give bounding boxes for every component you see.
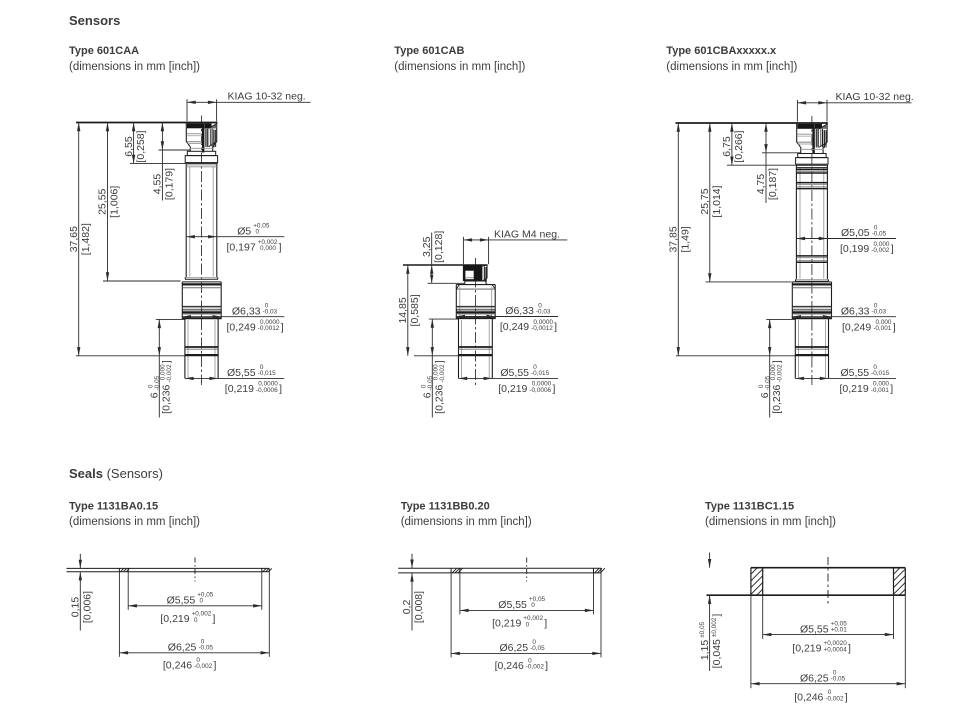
svg-text:[0,128]: [0,128] xyxy=(433,231,445,263)
svg-text:-0,03: -0,03 xyxy=(536,308,551,315)
svg-text:[0,219: [0,219 xyxy=(225,383,254,395)
svg-text:Ø5,55: Ø5,55 xyxy=(800,623,829,635)
svg-text:[1,482]: [1,482] xyxy=(80,223,92,255)
svg-text:]: ] xyxy=(848,643,851,655)
svg-text:37,85: 37,85 xyxy=(668,226,680,252)
svg-text:Ø5,05: Ø5,05 xyxy=(841,227,870,239)
svg-text:[0,008]: [0,008] xyxy=(413,591,425,623)
svg-text:]: ] xyxy=(552,383,555,395)
svg-text:[0,249: [0,249 xyxy=(227,321,256,333)
svg-text:Type 1131BA0.15: Type 1131BA0.15 xyxy=(69,500,158,512)
svg-text:(dimensions in mm [inch]): (dimensions in mm [inch]) xyxy=(69,516,200,528)
svg-text:-0,001: -0,001 xyxy=(871,387,890,394)
svg-text:Ø6,33: Ø6,33 xyxy=(232,305,261,317)
svg-text:-0,002: -0,002 xyxy=(871,247,890,254)
svg-text:[0,219: [0,219 xyxy=(792,643,821,655)
svg-text:4,55: 4,55 xyxy=(152,174,164,195)
svg-text:Ø6,25: Ø6,25 xyxy=(500,642,529,654)
svg-text:-0,03: -0,03 xyxy=(263,309,278,316)
svg-text:0: 0 xyxy=(200,598,204,605)
svg-text:[0,2360,000-0,002]: [0,2360,000-0,002] xyxy=(432,360,446,414)
svg-text:25,55: 25,55 xyxy=(97,188,109,214)
svg-text:[0,266]: [0,266] xyxy=(733,130,745,162)
svg-text:]: ] xyxy=(890,383,893,395)
svg-text:Ø6,25: Ø6,25 xyxy=(800,672,829,684)
svg-text:[0,219: [0,219 xyxy=(492,618,521,630)
svg-text:-0,0006: -0,0006 xyxy=(529,387,551,394)
svg-text:KIAG M4 neg.: KIAG M4 neg. xyxy=(494,228,560,240)
svg-text:-0,015: -0,015 xyxy=(871,370,890,377)
svg-text:-0,002: -0,002 xyxy=(194,663,213,670)
svg-text:Type 1131BC1.15: Type 1131BC1.15 xyxy=(705,500,794,512)
svg-text:]: ] xyxy=(545,660,548,672)
svg-text:Ø6,25: Ø6,25 xyxy=(168,642,197,654)
svg-text:]: ] xyxy=(893,321,896,333)
svg-text:-0,0012: -0,0012 xyxy=(531,325,553,332)
svg-text:3,25: 3,25 xyxy=(421,236,433,257)
svg-text:[0,246: [0,246 xyxy=(794,692,823,704)
svg-text:[0,199: [0,199 xyxy=(840,243,869,255)
svg-text:KIAG 10-32 neg.: KIAG 10-32 neg. xyxy=(836,91,914,103)
svg-text:]: ] xyxy=(281,321,284,333)
svg-text:-0,0006: -0,0006 xyxy=(256,387,278,394)
svg-text:25,75: 25,75 xyxy=(699,188,711,214)
svg-text:Ø5,55: Ø5,55 xyxy=(227,367,256,379)
svg-text:-0,015: -0,015 xyxy=(258,370,277,377)
svg-text:Seals (Sensors): Seals (Sensors) xyxy=(69,466,163,481)
svg-text:[0,246: [0,246 xyxy=(163,659,192,671)
svg-text:]: ] xyxy=(554,321,557,333)
svg-text:Type 1131BB0.20: Type 1131BB0.20 xyxy=(401,500,490,512)
svg-text:(dimensions in mm [inch]): (dimensions in mm [inch]) xyxy=(394,61,525,73)
svg-text:]: ] xyxy=(213,659,216,671)
svg-text:]: ] xyxy=(891,243,894,255)
svg-text:[0,219: [0,219 xyxy=(840,383,869,395)
svg-text:Ø6,33: Ø6,33 xyxy=(841,305,870,317)
svg-text:-0,001: -0,001 xyxy=(873,325,892,332)
svg-text:Type 601CAA: Type 601CAA xyxy=(69,45,139,57)
svg-text:0,15: 0,15 xyxy=(70,597,82,618)
svg-text:+0,0004: +0,0004 xyxy=(823,646,847,653)
svg-text:-0,015: -0,015 xyxy=(531,370,550,377)
svg-text:[1,014]: [1,014] xyxy=(711,185,723,217)
svg-text:Ø5,55: Ø5,55 xyxy=(167,595,196,607)
svg-text:]: ] xyxy=(279,241,282,253)
svg-text:[0,219: [0,219 xyxy=(160,613,189,625)
svg-text:Type 601CAB: Type 601CAB xyxy=(394,45,464,57)
svg-text:[0,249: [0,249 xyxy=(500,321,529,333)
svg-text:Sensors: Sensors xyxy=(69,13,120,28)
svg-text:[0,197: [0,197 xyxy=(227,241,256,253)
svg-text:[0,2360,000-0,002]: [0,2360,000-0,002] xyxy=(770,360,784,414)
svg-text:(dimensions in mm [inch]): (dimensions in mm [inch]) xyxy=(666,61,797,73)
svg-text:[0,219: [0,219 xyxy=(498,383,527,395)
svg-text:6,55: 6,55 xyxy=(123,136,135,157)
svg-text:14,85: 14,85 xyxy=(397,297,409,323)
svg-text:Ø5: Ø5 xyxy=(237,225,251,237)
svg-text:6,75: 6,75 xyxy=(721,136,733,157)
svg-text:Type 601CBAxxxxx.x: Type 601CBAxxxxx.x xyxy=(666,45,777,57)
svg-text:-0,0012: -0,0012 xyxy=(258,325,280,332)
svg-text:Ø6,33: Ø6,33 xyxy=(505,305,534,317)
svg-text:Ø5,55: Ø5,55 xyxy=(498,599,527,611)
svg-text:0: 0 xyxy=(256,229,260,236)
svg-text:0: 0 xyxy=(531,602,535,609)
svg-text:(dimensions in mm [inch]): (dimensions in mm [inch]) xyxy=(705,516,836,528)
svg-text:]: ] xyxy=(845,692,848,704)
svg-text:]: ] xyxy=(213,613,216,625)
svg-text:[0,2360,000-0,002]: [0,2360,000-0,002] xyxy=(159,360,173,414)
svg-text:+0,01: +0,01 xyxy=(831,626,848,633)
svg-text:]: ] xyxy=(279,383,282,395)
svg-text:[0,006]: [0,006] xyxy=(82,591,94,623)
svg-text:-0,05: -0,05 xyxy=(198,645,213,652)
svg-text:4,75: 4,75 xyxy=(755,174,767,195)
svg-text:-0,002: -0,002 xyxy=(526,664,545,671)
svg-text:0: 0 xyxy=(194,617,198,624)
svg-text:[0,258]: [0,258] xyxy=(135,130,147,162)
svg-text:[0,585]: [0,585] xyxy=(409,294,421,326)
svg-text:Ø5,55: Ø5,55 xyxy=(841,367,870,379)
svg-text:0,2: 0,2 xyxy=(401,600,413,615)
svg-text:Ø5,55: Ø5,55 xyxy=(500,367,529,379)
svg-text:KIAG 10-32 neg.: KIAG 10-32 neg. xyxy=(228,91,306,103)
svg-text:-0,05: -0,05 xyxy=(831,676,846,683)
svg-text:[1,006]: [1,006] xyxy=(109,186,121,218)
svg-text:[0,187]: [0,187] xyxy=(767,168,779,200)
svg-text:-0,03: -0,03 xyxy=(872,309,887,316)
svg-text:[0,246: [0,246 xyxy=(495,660,524,672)
svg-text:]: ] xyxy=(544,618,547,630)
svg-text:[1,49]: [1,49] xyxy=(680,226,692,252)
svg-text:(dimensions in mm [inch]): (dimensions in mm [inch]) xyxy=(401,516,532,528)
svg-text:(dimensions in mm [inch]): (dimensions in mm [inch]) xyxy=(69,61,200,73)
svg-text:[0,249: [0,249 xyxy=(842,321,871,333)
svg-text:-0,05: -0,05 xyxy=(872,230,887,237)
svg-text:0,000: 0,000 xyxy=(260,245,276,252)
svg-text:[0,179]: [0,179] xyxy=(164,168,176,200)
svg-text:0: 0 xyxy=(526,621,530,628)
svg-text:37,65: 37,65 xyxy=(68,226,80,252)
svg-text:-0,05: -0,05 xyxy=(530,645,545,652)
svg-text:-0,002: -0,002 xyxy=(825,695,844,702)
